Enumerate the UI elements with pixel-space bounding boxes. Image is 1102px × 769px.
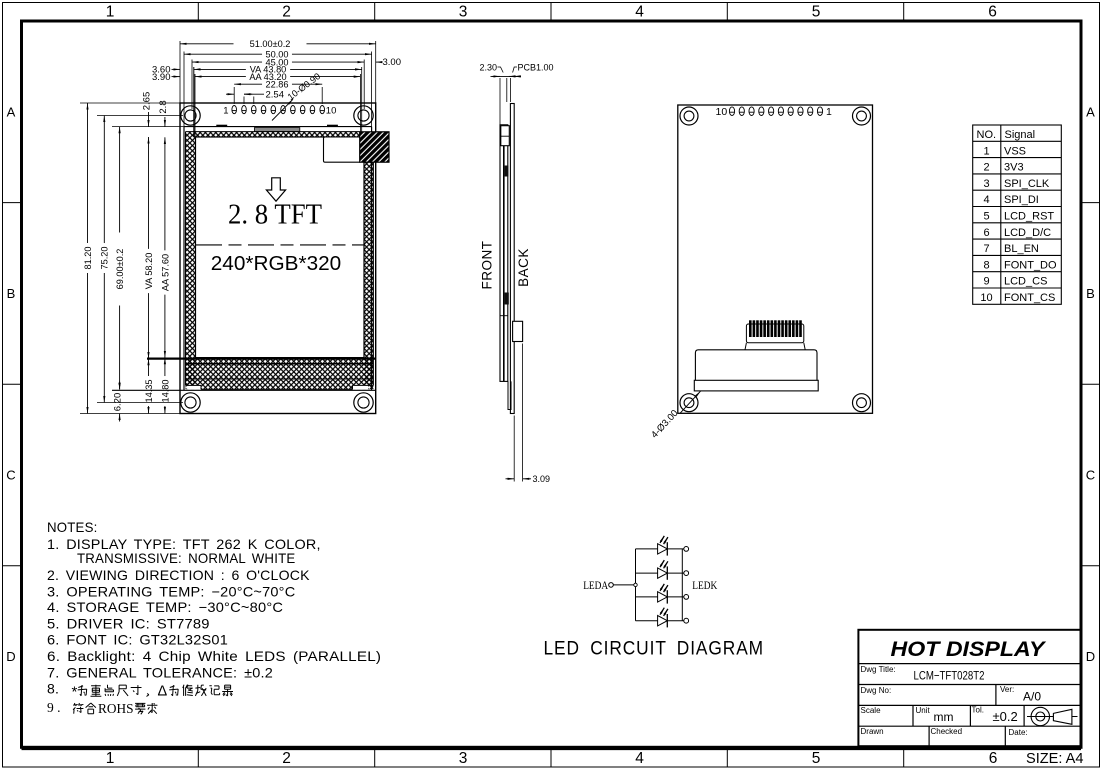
svg-text:6: 6	[989, 750, 998, 767]
svg-text:6: 6	[983, 227, 989, 239]
svg-text:81.20: 81.20	[83, 247, 93, 270]
svg-text:9: 9	[983, 276, 989, 288]
svg-text:2. VIEWING DIRECTION : 6 O'CLO: 2. VIEWING DIRECTION : 6 O'CLOCK	[47, 567, 310, 583]
svg-text:VA 58.20: VA 58.20	[144, 253, 154, 290]
svg-text:LED CIRCUIT DIAGRAM: LED CIRCUIT DIAGRAM	[544, 639, 765, 660]
svg-text:6.20: 6.20	[112, 393, 123, 412]
svg-text:Dwg No:: Dwg No:	[861, 686, 892, 695]
svg-text:10: 10	[980, 292, 992, 304]
svg-text:NOTES:: NOTES:	[47, 519, 98, 535]
svg-text:LCM−TFT028T2: LCM−TFT028T2	[914, 668, 985, 682]
svg-text:C: C	[6, 468, 15, 483]
svg-text:C: C	[1086, 468, 1095, 483]
svg-text:2: 2	[983, 162, 989, 174]
svg-text:240*RGB*320: 240*RGB*320	[211, 252, 342, 275]
svg-text:1: 1	[106, 750, 115, 767]
svg-text:HOT DISPLAY: HOT DISPLAY	[891, 637, 1047, 661]
svg-text:7: 7	[983, 243, 989, 255]
svg-text:Unit: Unit	[916, 706, 931, 715]
svg-text:1: 1	[106, 4, 115, 21]
svg-text:3. OPERATING TEMP: −20°C~70°C: 3. OPERATING TEMP: −20°C~70°C	[47, 584, 295, 600]
svg-text:Checked: Checked	[931, 727, 963, 736]
svg-text:51.00±0.2: 51.00±0.2	[250, 39, 291, 49]
svg-text:7. GENERAL TOLERANCE: ±0.2: 7. GENERAL TOLERANCE: ±0.2	[47, 664, 273, 680]
svg-text:B: B	[1086, 286, 1095, 301]
svg-text:10: 10	[716, 106, 728, 118]
svg-text:1: 1	[223, 105, 228, 116]
svg-text:PCB1.00: PCB1.00	[518, 63, 554, 73]
svg-text:5: 5	[812, 750, 821, 767]
svg-text:LCD_D/C: LCD_D/C	[1004, 227, 1051, 239]
svg-text:SIZE: A4: SIZE: A4	[1026, 750, 1084, 767]
svg-text:6. FONT IC: GT32L32S01: 6. FONT IC: GT32L32S01	[47, 632, 228, 648]
svg-text:Date:: Date:	[1009, 728, 1028, 737]
svg-text:8.: 8.	[47, 681, 59, 697]
svg-text:5: 5	[983, 211, 989, 223]
svg-text:14.80: 14.80	[160, 380, 170, 403]
svg-text:1: 1	[826, 106, 832, 118]
svg-text:FONT_DO: FONT_DO	[1004, 259, 1057, 271]
svg-text:4: 4	[983, 194, 989, 206]
svg-text:BACK: BACK	[516, 248, 531, 287]
svg-text:LEDK: LEDK	[692, 578, 717, 592]
svg-text:Tol.: Tol.	[972, 706, 984, 715]
svg-text:1: 1	[983, 145, 989, 157]
svg-text:*: *	[72, 683, 78, 700]
svg-text:14.35: 14.35	[144, 380, 154, 403]
svg-text:TRANSMISSIVE: NORMAL WHITE: TRANSMISSIVE: NORMAL WHITE	[77, 550, 295, 566]
svg-text:2.65: 2.65	[141, 92, 152, 111]
svg-text:NO.: NO.	[977, 129, 997, 141]
svg-text:SPI_DI: SPI_DI	[1004, 194, 1039, 206]
svg-text:3.09: 3.09	[533, 474, 551, 484]
svg-text:A: A	[1086, 105, 1095, 120]
svg-text:3: 3	[983, 178, 989, 190]
svg-text:2: 2	[282, 4, 291, 21]
svg-text:AA 57.60: AA 57.60	[160, 254, 170, 291]
svg-text:BL_EN: BL_EN	[1004, 243, 1039, 255]
svg-text:3.00: 3.00	[383, 57, 402, 68]
svg-text:Ver:: Ver:	[1000, 685, 1014, 694]
svg-text:3: 3	[459, 4, 468, 21]
svg-text:A: A	[7, 105, 16, 120]
svg-text:D: D	[1086, 649, 1095, 664]
svg-text:3V3: 3V3	[1004, 162, 1024, 174]
svg-text:4. STORAGE TEMP: −30°C~80°C: 4. STORAGE TEMP: −30°C~80°C	[47, 599, 283, 615]
svg-text:Dwg Title:: Dwg Title:	[861, 665, 896, 674]
svg-text:LCD_CS: LCD_CS	[1004, 276, 1047, 288]
svg-text:2.30: 2.30	[479, 63, 497, 73]
svg-text:FRONT: FRONT	[480, 241, 495, 290]
svg-text:A/0: A/0	[1023, 690, 1041, 704]
svg-text:69.00±0.2: 69.00±0.2	[115, 249, 125, 290]
svg-text:9 .: 9 .	[47, 700, 61, 715]
svg-text:6: 6	[988, 4, 997, 21]
svg-text:Scale: Scale	[861, 706, 882, 715]
svg-text:2.8: 2.8	[158, 100, 169, 113]
svg-text:8: 8	[983, 259, 989, 271]
svg-text:ROHS: ROHS	[98, 701, 134, 716]
svg-text:4: 4	[635, 750, 644, 767]
svg-text:4: 4	[635, 4, 644, 21]
svg-text:LEDA: LEDA	[583, 578, 608, 592]
svg-text:22.86: 22.86	[266, 79, 289, 89]
svg-text:10: 10	[326, 105, 337, 116]
svg-text:D: D	[6, 649, 15, 664]
svg-text:FONT_CS: FONT_CS	[1004, 292, 1055, 304]
svg-text:2: 2	[282, 750, 291, 767]
svg-text:75.20: 75.20	[100, 247, 110, 270]
svg-text:SPI_CLK: SPI_CLK	[1004, 178, 1050, 190]
svg-text:B: B	[7, 286, 16, 301]
svg-text:2. 8 TFT: 2. 8 TFT	[228, 200, 322, 231]
svg-text:±0.2: ±0.2	[993, 709, 1018, 724]
svg-text:6. Backlight: 4 Chip White LED: 6. Backlight: 4 Chip White LEDS (PARALLE…	[47, 648, 381, 664]
svg-text:3.90: 3.90	[152, 72, 171, 83]
svg-text:LCD_RST: LCD_RST	[1004, 211, 1054, 223]
svg-text:5. DRIVER IC: ST7789: 5. DRIVER IC: ST7789	[47, 615, 210, 631]
svg-text:5: 5	[812, 4, 821, 21]
svg-text:2.54: 2.54	[266, 89, 285, 100]
svg-text:Δ: Δ	[158, 684, 168, 700]
svg-text:Drawn: Drawn	[861, 727, 884, 736]
svg-text:VSS: VSS	[1004, 145, 1026, 157]
svg-text:mm: mm	[934, 710, 954, 724]
svg-text:3: 3	[459, 750, 468, 767]
svg-text:Signal: Signal	[1005, 129, 1036, 141]
